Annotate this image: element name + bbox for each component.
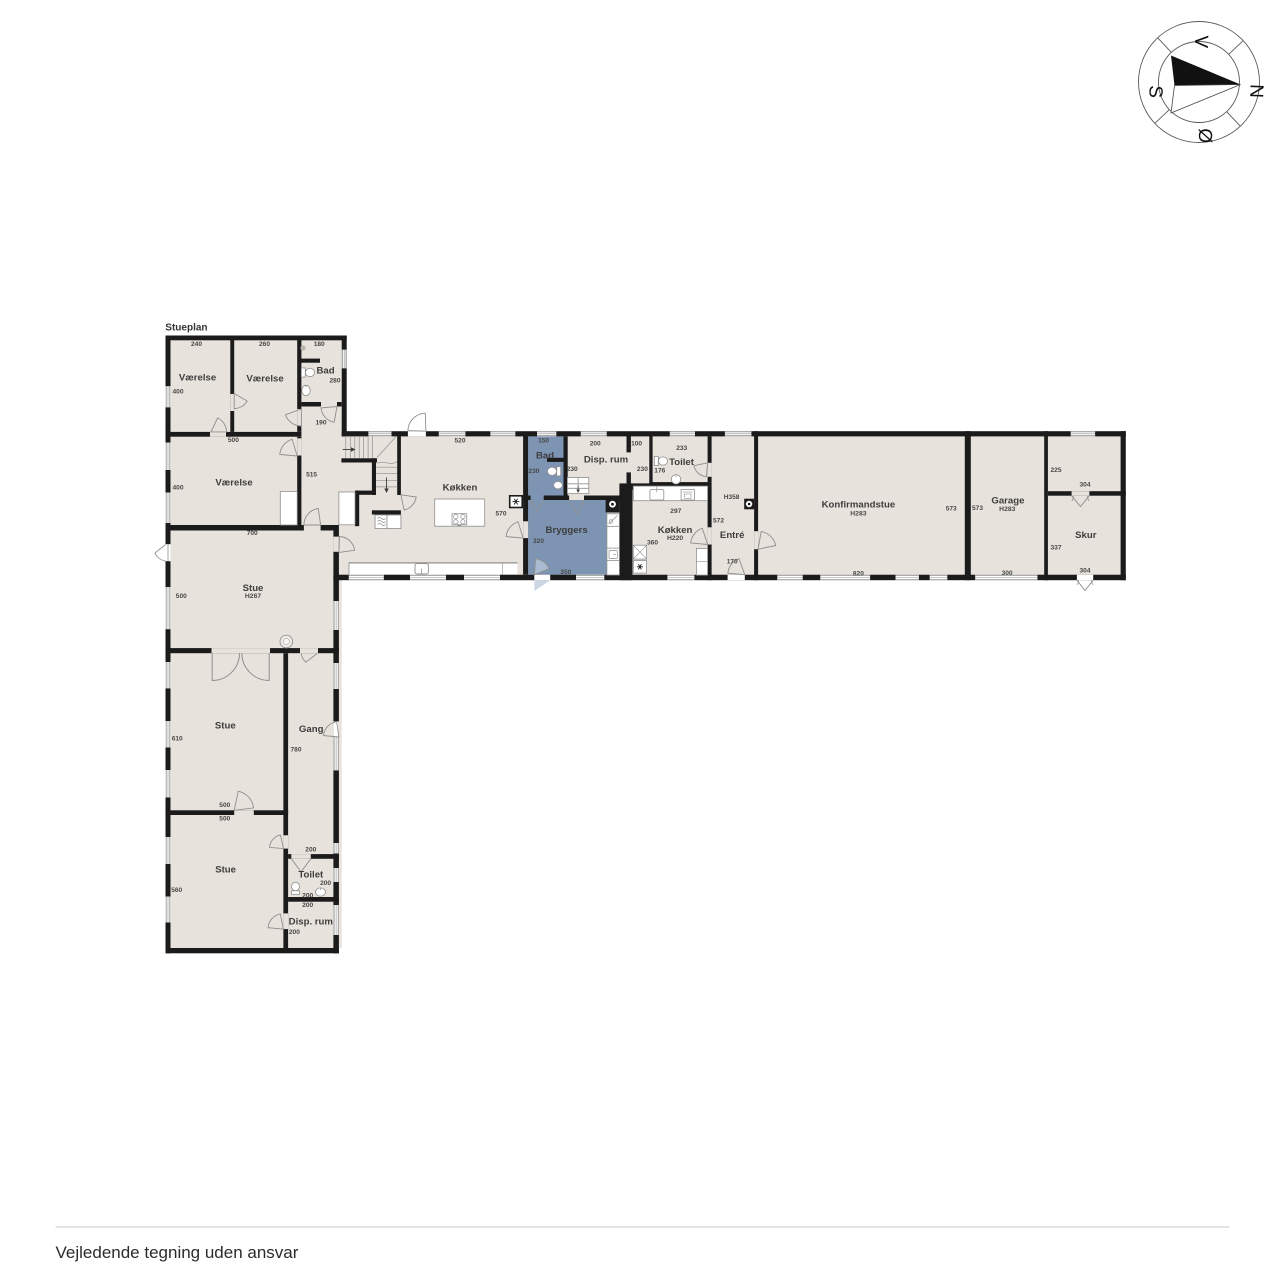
svg-text:360: 360 (647, 539, 658, 546)
svg-text:180: 180 (314, 341, 325, 348)
svg-text:400: 400 (173, 484, 184, 491)
svg-text:Disp. rum: Disp. rum (584, 455, 628, 466)
svg-text:190: 190 (315, 419, 326, 426)
svg-text:233: 233 (676, 445, 687, 452)
svg-text:Værelse: Værelse (215, 478, 252, 489)
svg-text:225: 225 (1051, 467, 1062, 474)
svg-text:200: 200 (302, 902, 313, 909)
svg-text:Bad: Bad (536, 451, 554, 462)
svg-text:700: 700 (247, 530, 258, 537)
svg-text:515: 515 (306, 471, 317, 478)
svg-text:200: 200 (289, 929, 300, 936)
svg-text:H283: H283 (999, 506, 1015, 513)
svg-text:200: 200 (320, 880, 331, 887)
svg-text:Bryggers: Bryggers (546, 525, 588, 536)
svg-text:H267: H267 (245, 593, 261, 600)
svg-text:Konfirmandstue: Konfirmandstue (822, 500, 896, 511)
svg-text:N: N (1245, 84, 1266, 98)
svg-text:780: 780 (291, 746, 302, 753)
svg-text:610: 610 (172, 736, 183, 743)
svg-text:200: 200 (590, 441, 601, 448)
svg-text:Stueplan: Stueplan (165, 323, 207, 334)
svg-text:572: 572 (713, 517, 724, 524)
svg-text:230: 230 (637, 466, 648, 473)
svg-text:200: 200 (305, 847, 316, 854)
svg-text:Entré: Entré (720, 530, 745, 541)
svg-text:Værelse: Værelse (179, 373, 216, 384)
svg-text:Stue: Stue (215, 721, 236, 732)
svg-text:Gang: Gang (299, 724, 324, 735)
svg-text:570: 570 (495, 510, 506, 517)
svg-text:Vejledende tegning uden ansvar: Vejledende tegning uden ansvar (56, 1243, 299, 1262)
svg-text:400: 400 (173, 388, 184, 395)
svg-text:304: 304 (1079, 567, 1090, 574)
svg-text:H358: H358 (724, 494, 740, 501)
svg-text:V: V (1190, 35, 1211, 49)
svg-text:280: 280 (329, 377, 340, 384)
svg-text:337: 337 (1051, 544, 1062, 551)
svg-text:573: 573 (946, 505, 957, 512)
svg-text:573: 573 (972, 505, 983, 512)
svg-text:260: 260 (259, 341, 270, 348)
svg-text:500: 500 (176, 593, 187, 600)
svg-text:Bad: Bad (316, 366, 334, 377)
svg-text:170: 170 (727, 559, 738, 566)
svg-text:560: 560 (171, 887, 182, 894)
svg-text:230: 230 (528, 468, 539, 475)
svg-text:500: 500 (219, 816, 230, 823)
svg-text:320: 320 (533, 538, 544, 545)
svg-text:500: 500 (219, 802, 230, 809)
svg-text:Stue: Stue (215, 865, 236, 876)
svg-text:304: 304 (1079, 482, 1090, 489)
svg-text:150: 150 (538, 438, 549, 445)
svg-text:820: 820 (853, 570, 864, 577)
svg-text:Værelse: Værelse (246, 374, 283, 385)
svg-text:300: 300 (1002, 570, 1013, 577)
svg-text:H283: H283 (850, 510, 866, 517)
svg-text:Toilet: Toilet (669, 457, 695, 468)
svg-text:230: 230 (567, 466, 578, 473)
svg-text:176: 176 (654, 468, 665, 475)
svg-text:H220: H220 (667, 535, 683, 542)
svg-text:Køkken: Køkken (443, 483, 478, 494)
svg-text:500: 500 (228, 437, 239, 444)
svg-text:240: 240 (191, 341, 202, 348)
svg-text:520: 520 (454, 437, 465, 444)
svg-text:350: 350 (560, 569, 571, 576)
svg-text:Disp. rum: Disp. rum (289, 917, 333, 928)
svg-text:Skur: Skur (1075, 530, 1097, 541)
svg-text:100: 100 (631, 441, 642, 448)
svg-text:S: S (1144, 85, 1165, 98)
svg-text:200: 200 (302, 892, 313, 899)
svg-text:Ø: Ø (1194, 128, 1216, 144)
svg-text:297: 297 (670, 508, 681, 515)
